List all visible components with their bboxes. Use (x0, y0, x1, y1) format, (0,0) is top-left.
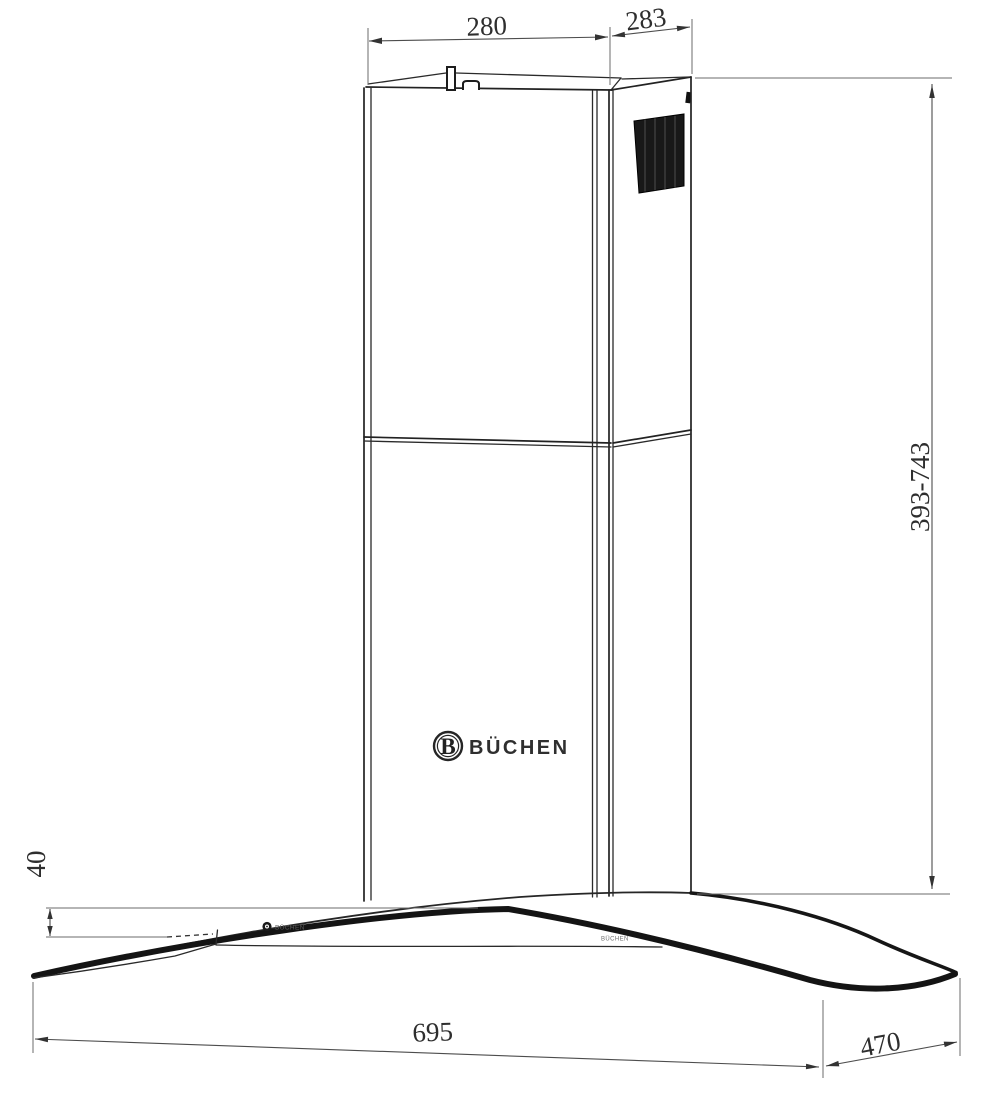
bracket-tab (463, 81, 479, 90)
arrowhead (677, 26, 690, 32)
chimney-top-back-edge-right (456, 73, 621, 78)
chimney-top-front-edge (366, 87, 612, 90)
arrowhead (47, 909, 52, 919)
arrowhead (47, 926, 52, 936)
glass-canopy: BÜCHEN BÜCHEN (33, 892, 956, 988)
brand-name-text: BÜCHEN (469, 736, 570, 759)
arrowhead (806, 1064, 819, 1070)
dimension-label-canopy-width: 695 (412, 1016, 454, 1047)
technical-drawing-canvas: B BÜCHEN BÜCHEN (0, 0, 1000, 1094)
vent-grille (634, 114, 684, 193)
hood-drawing-svg: B BÜCHEN BÜCHEN (0, 0, 1000, 1094)
dimension-edge-height: 40 (21, 851, 478, 938)
canopy-front-glass-edge (34, 909, 955, 989)
arrowhead (929, 85, 935, 98)
dimension-canopy-width: 695 (33, 982, 823, 1078)
arrowhead (35, 1037, 48, 1043)
dimension-label-top-depth: 283 (624, 2, 668, 37)
arrowhead (929, 876, 935, 889)
arrowhead (595, 34, 608, 40)
telescopic-seam (364, 430, 691, 447)
dimension-label-top-width: 280 (466, 10, 508, 41)
chimney-top-back-edge-left (368, 73, 446, 84)
dimension-label-edge-height: 40 (21, 851, 51, 878)
dimension-top-depth: 283 (612, 2, 692, 74)
brand-logo: B BÜCHEN (434, 732, 570, 760)
arrowhead (826, 1061, 839, 1067)
mini-logo-dot (266, 926, 268, 928)
mini-brand-text-right: BÜCHEN (601, 936, 629, 943)
grille-body (634, 114, 684, 193)
arrowhead (944, 1042, 957, 1048)
mini-brand-text-left: BÜCHEN (275, 924, 305, 932)
bracket-post (447, 67, 455, 90)
canopy-hidden-edge (167, 934, 213, 937)
dimension-height-range: 393-743 (695, 78, 952, 894)
logo-monogram: B (440, 734, 455, 759)
dimension-canopy-depth: 470 (826, 978, 960, 1066)
arrowhead (369, 38, 382, 44)
canopy-band-bottom-edge (216, 945, 662, 947)
dimension-label-canopy-depth: 470 (858, 1026, 903, 1063)
arrowhead (612, 32, 625, 38)
top-mounting-bracket (447, 67, 479, 90)
chimney-duct: B BÜCHEN (364, 67, 692, 901)
dimension-label-height-range: 393-743 (905, 442, 935, 532)
